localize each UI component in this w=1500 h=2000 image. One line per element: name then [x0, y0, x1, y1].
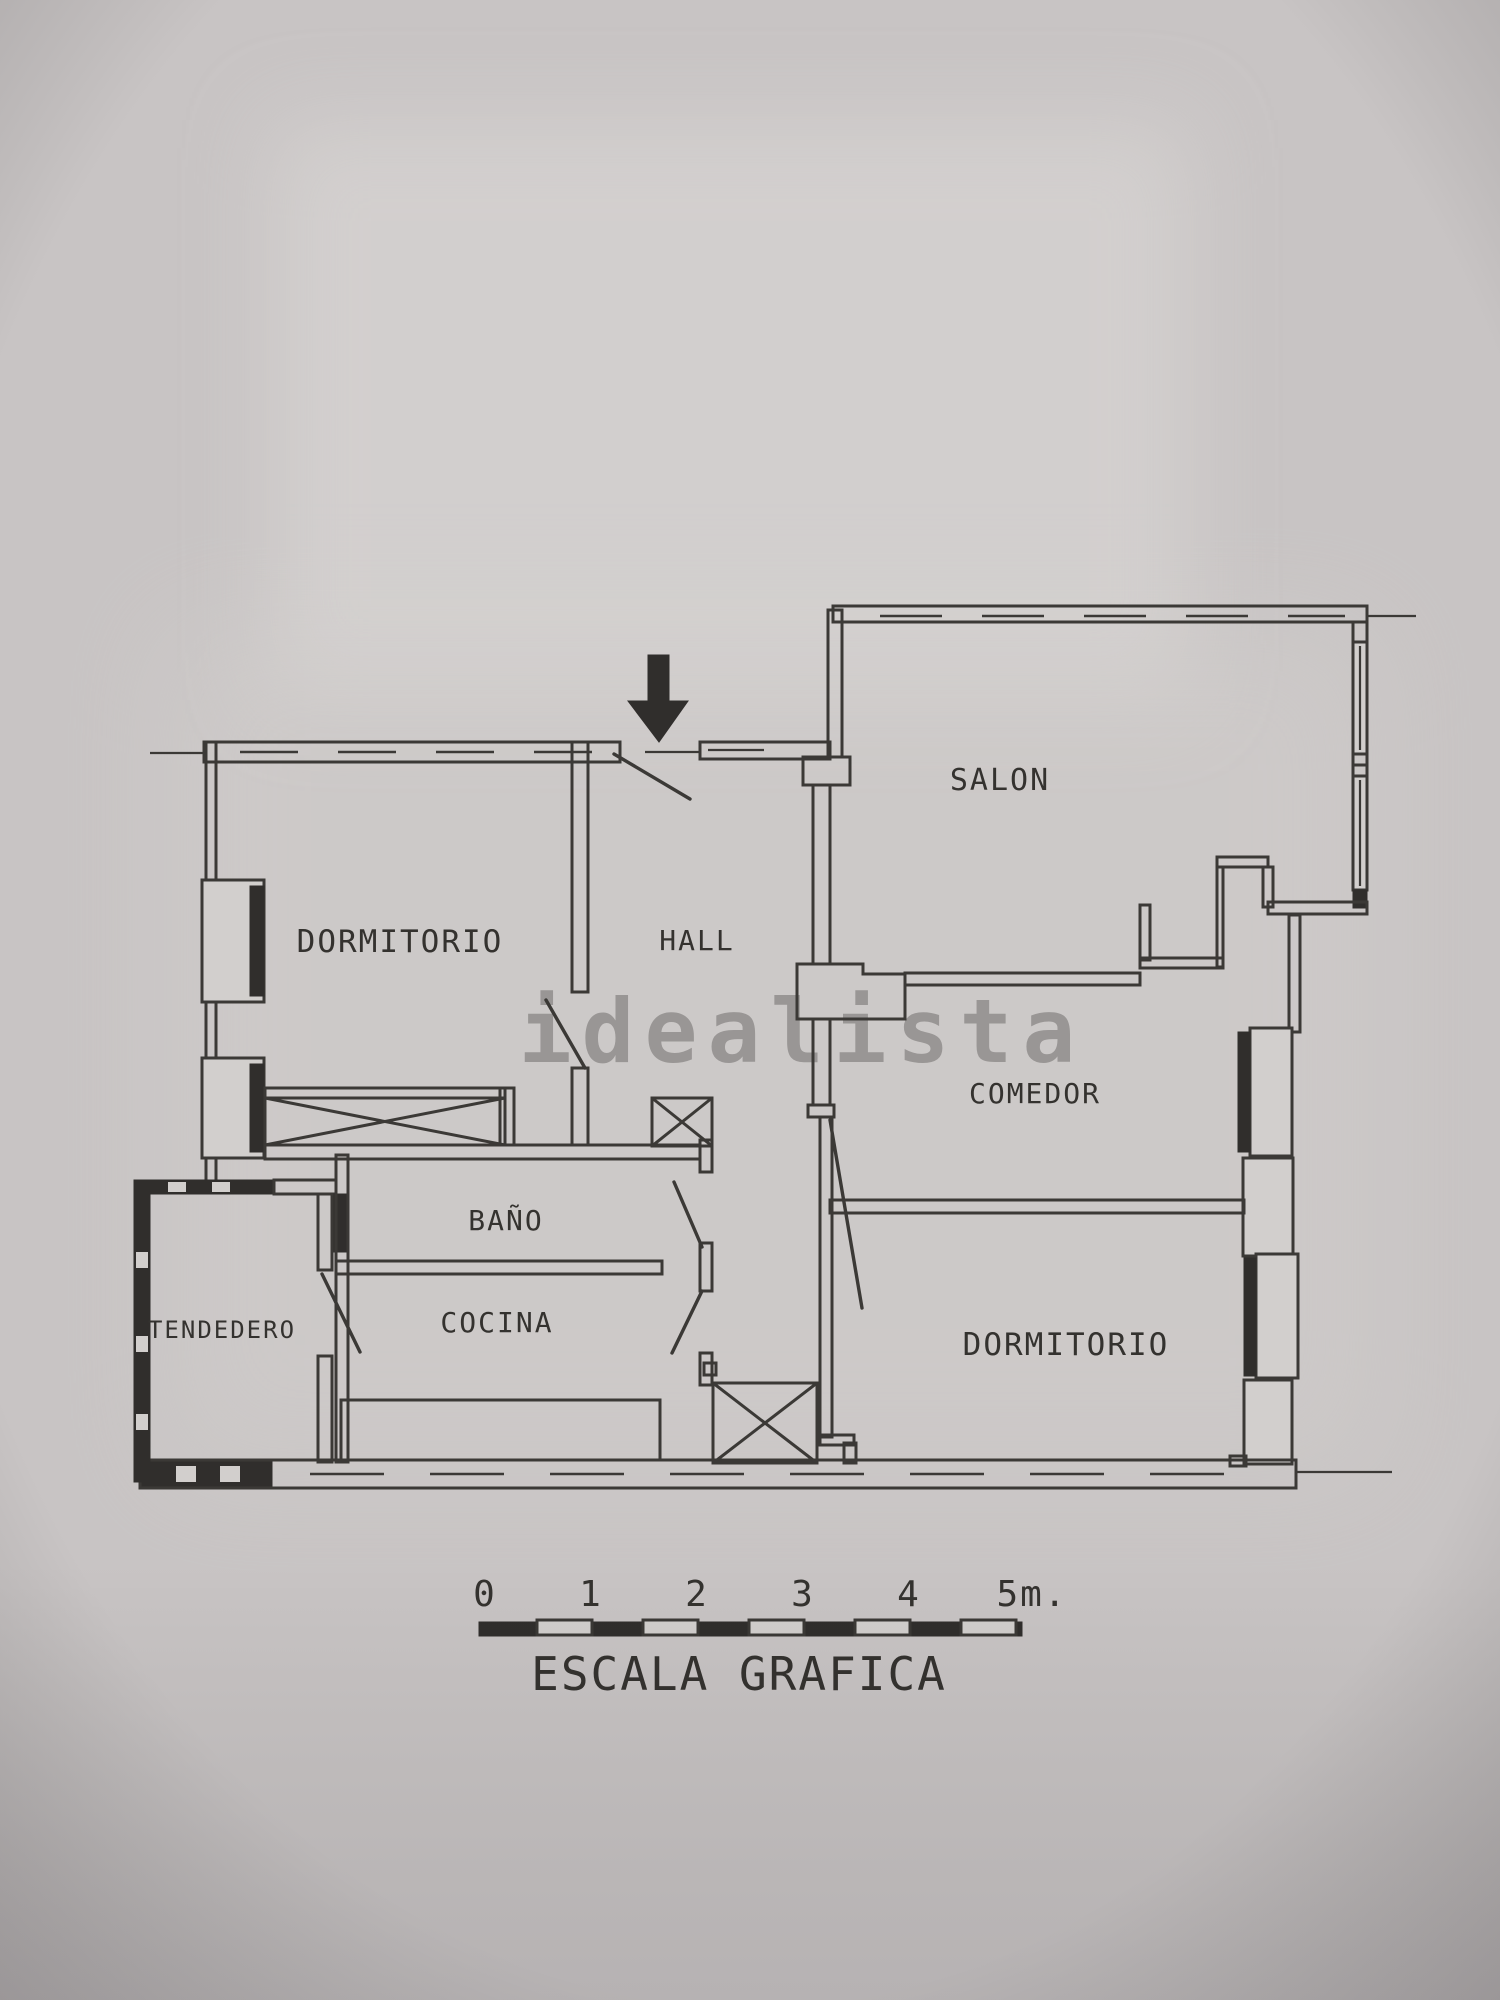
floorplan-canvas: idealista: [0, 0, 1500, 2000]
photo-bottom-shade: [0, 0, 1500, 2000]
floorplan-photo: idealista: [0, 0, 1500, 2000]
